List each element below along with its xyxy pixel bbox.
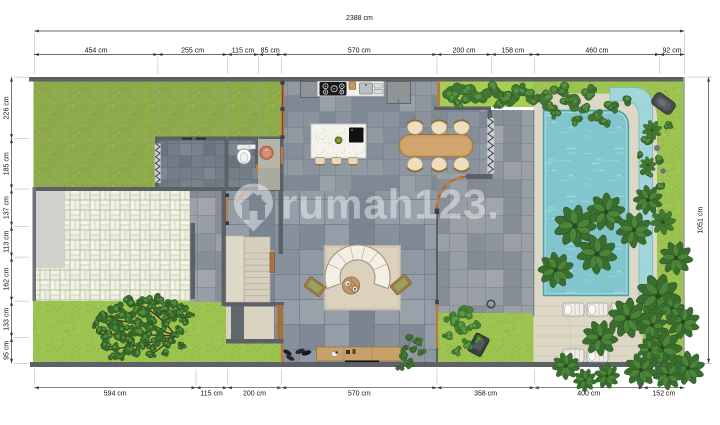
svg-text:95 cm: 95 cm — [4, 341, 11, 360]
svg-text:1051 cm: 1051 cm — [698, 207, 705, 234]
svg-text:255 cm: 255 cm — [181, 48, 204, 55]
svg-text:152 cm: 152 cm — [652, 391, 675, 398]
svg-text:115 cm: 115 cm — [200, 391, 223, 398]
svg-text:85 cm: 85 cm — [261, 48, 280, 55]
svg-text:570 cm: 570 cm — [348, 391, 371, 398]
svg-text:460 cm: 460 cm — [585, 48, 608, 55]
svg-text:115 cm: 115 cm — [232, 48, 255, 55]
svg-text:200 cm: 200 cm — [453, 48, 476, 55]
svg-text:200 cm: 200 cm — [243, 391, 266, 398]
svg-text:137 cm: 137 cm — [4, 196, 11, 219]
svg-text:226 cm: 226 cm — [4, 96, 11, 119]
svg-text:185 cm: 185 cm — [4, 152, 11, 175]
svg-text:113 cm: 113 cm — [4, 230, 11, 253]
svg-text:rumah123.: rumah123. — [281, 181, 500, 228]
svg-text:158 cm: 158 cm — [501, 48, 524, 55]
svg-text:2388 cm: 2388 cm — [346, 15, 373, 22]
svg-text:358 cm: 358 cm — [474, 391, 497, 398]
svg-text:594 cm: 594 cm — [104, 391, 127, 398]
svg-text:454 cm: 454 cm — [85, 48, 108, 55]
svg-text:92 cm: 92 cm — [662, 48, 681, 55]
svg-text:570 cm: 570 cm — [348, 48, 371, 55]
svg-text:400 cm: 400 cm — [577, 391, 600, 398]
svg-text:162 cm: 162 cm — [4, 268, 11, 291]
svg-text:133 cm: 133 cm — [4, 308, 11, 331]
